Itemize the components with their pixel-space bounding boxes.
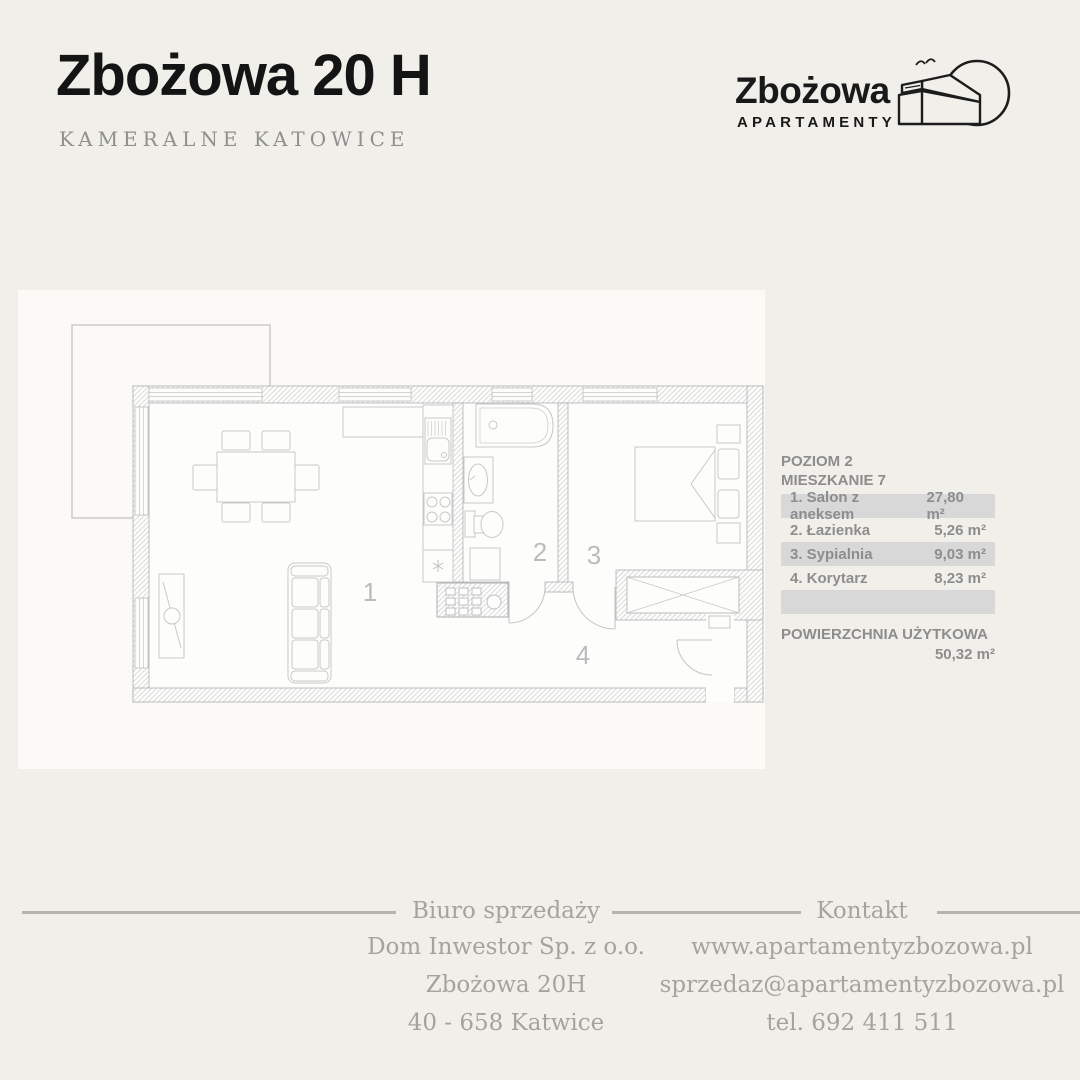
bath-cabinet <box>470 548 500 580</box>
contact-email: sprzedaz@apartamentyzbozowa.pl <box>642 966 1080 1004</box>
wall-bath-bottom-b <box>545 582 573 592</box>
wall-right <box>747 386 763 702</box>
toilet <box>465 511 503 538</box>
room-rows: 1. Salon z aneksem27,80 m²2. Łazienka5,2… <box>781 494 995 590</box>
window-bath-top <box>492 388 532 401</box>
fridge <box>423 550 453 582</box>
unit-label: MIESZKANIE 7 <box>781 471 995 490</box>
level-label: POZIOM 2 <box>781 452 995 471</box>
room-name: 1. Salon z aneksem <box>790 489 926 523</box>
floorplan-panel: 1 2 3 4 <box>15 290 775 775</box>
room-name: 3. Sypialnia <box>790 546 873 563</box>
total-area-label: POWIERZCHNIA UŻYTKOWA <box>781 626 995 643</box>
nightstand <box>717 425 740 443</box>
chair <box>222 431 250 450</box>
floorplan-drawing: 1 2 3 4 <box>15 290 775 770</box>
office-heading: Biuro sprzedaży <box>356 898 656 924</box>
contact-website: www.apartamentyzbozowa.pl <box>642 928 1080 966</box>
footer-divider-left <box>22 911 396 914</box>
window-living-left-lower <box>135 598 148 668</box>
nightstand <box>717 523 740 543</box>
contact-heading: Kontakt <box>712 898 1012 924</box>
window-kitchen-top <box>339 388 411 401</box>
room-area: 27,80 m² <box>926 489 986 523</box>
chair <box>262 503 290 522</box>
building-icon <box>899 75 980 124</box>
room-row: 4. Korytarz8,23 m² <box>781 566 995 590</box>
sofa <box>288 563 331 683</box>
logo-name: Zbożowa <box>735 70 890 112</box>
kitchen-stove <box>424 493 452 525</box>
room-name: 4. Korytarz <box>790 570 868 587</box>
room-row: 1. Salon z aneksem27,80 m² <box>781 494 995 518</box>
unit-info: POZIOM 2 MIESZKANIE 7 1. Salon z aneksem… <box>781 452 995 663</box>
birds-icon <box>916 59 935 65</box>
window-bedroom-top <box>583 388 657 401</box>
room-area: 5,26 m² <box>934 522 986 539</box>
bathtub <box>476 404 553 447</box>
room-label-living: 1 <box>363 577 377 607</box>
utility-block <box>437 583 508 617</box>
window-living-left-upper <box>135 407 148 515</box>
dining-table <box>217 452 295 502</box>
pillow <box>718 490 739 518</box>
poster-canvas: Zbożowa 20 H KAMERALNE KATOWICE Zbożowa … <box>0 0 1080 1080</box>
chair <box>295 465 319 490</box>
contact-phone: tel. 692 411 511 <box>642 1004 1080 1042</box>
wall-bottom-left <box>133 688 706 702</box>
wall-kitchen-bath <box>453 403 463 592</box>
window-living-top <box>149 388 262 401</box>
contact-details: www.apartamentyzbozowa.pl sprzedaz@apart… <box>642 928 1080 1042</box>
pillow <box>718 449 739 479</box>
page-title: Zbożowa 20 H <box>56 42 431 109</box>
building-sun-icon <box>893 50 1023 147</box>
room-name: 2. Łazienka <box>790 522 870 539</box>
kitchen-sink <box>425 418 451 464</box>
room-area: 9,03 m² <box>934 546 986 563</box>
empty-row <box>781 590 995 614</box>
room-label-bathroom: 2 <box>533 537 547 567</box>
logo-tagline: APARTAMENTY <box>737 114 896 131</box>
room-label-corridor: 4 <box>576 640 590 670</box>
chair <box>222 503 250 522</box>
chair <box>262 431 290 450</box>
page-subtitle: KAMERALNE KATOWICE <box>59 127 409 151</box>
washbasin <box>464 457 493 503</box>
room-label-bedroom: 3 <box>587 540 601 570</box>
wall-bath-bedroom <box>558 403 568 592</box>
wardrobe <box>627 577 739 613</box>
room-row: 3. Sypialnia9,03 m² <box>781 542 995 566</box>
kitchen-counter <box>343 407 423 437</box>
total-area-value: 50,32 m² <box>781 646 995 663</box>
room-area: 8,23 m² <box>934 570 986 587</box>
entry-threshold <box>709 616 730 628</box>
chair <box>193 465 217 490</box>
tv-cabinet <box>159 574 184 658</box>
